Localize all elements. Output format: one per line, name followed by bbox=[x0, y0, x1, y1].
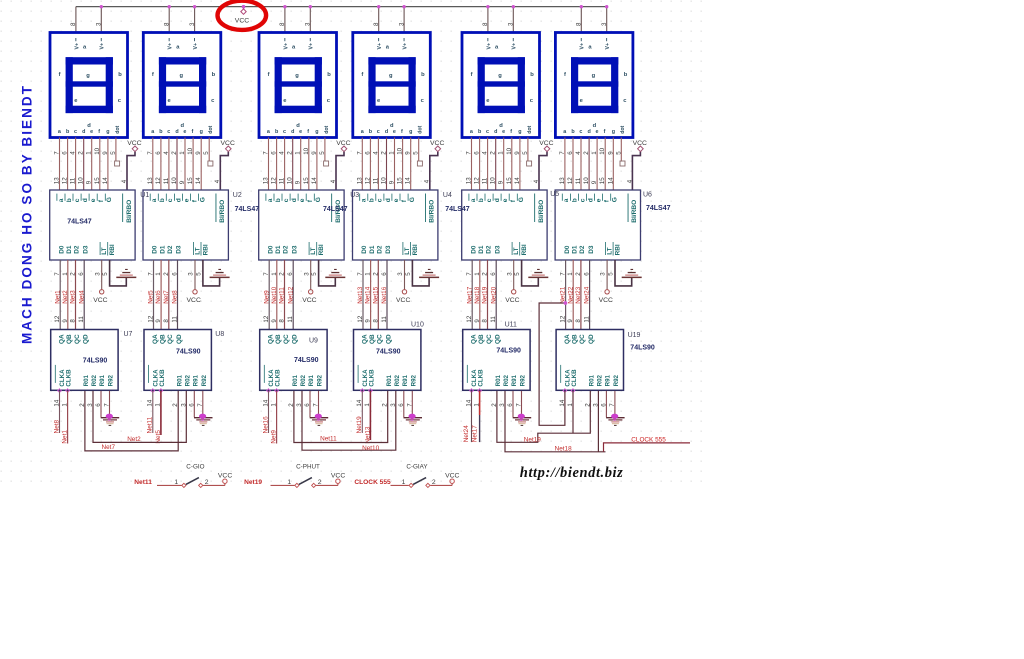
svg-text:3: 3 bbox=[398, 22, 405, 26]
svg-text:c: c bbox=[283, 129, 286, 135]
svg-text:R91: R91 bbox=[193, 374, 200, 386]
svg-text:4: 4 bbox=[279, 151, 286, 155]
svg-text:e: e bbox=[596, 129, 599, 135]
svg-text:3: 3 bbox=[188, 272, 195, 276]
svg-text:Net2: Net2 bbox=[62, 290, 69, 304]
svg-text:Net16: Net16 bbox=[262, 416, 269, 433]
svg-text:10: 10 bbox=[397, 147, 404, 154]
svg-text:2: 2 bbox=[287, 151, 294, 155]
svg-text:Net5: Net5 bbox=[155, 430, 162, 444]
svg-text:9: 9 bbox=[365, 319, 372, 323]
svg-text:3: 3 bbox=[397, 272, 404, 276]
svg-text:Net1: Net1 bbox=[62, 430, 69, 444]
svg-text:U9: U9 bbox=[309, 338, 318, 345]
svg-text:11: 11 bbox=[490, 316, 497, 323]
svg-text:d: d bbox=[494, 198, 501, 202]
svg-text:QA: QA bbox=[59, 334, 66, 344]
svg-text:6: 6 bbox=[381, 272, 388, 276]
svg-text:D3: D3 bbox=[588, 245, 595, 254]
svg-text:dot: dot bbox=[418, 125, 424, 133]
svg-text:QA: QA bbox=[152, 334, 159, 344]
svg-text:c: c bbox=[579, 129, 582, 135]
svg-text:13: 13 bbox=[54, 177, 61, 184]
svg-text:a: a bbox=[267, 198, 274, 202]
svg-text:R02: R02 bbox=[300, 374, 307, 386]
svg-text:10: 10 bbox=[303, 147, 310, 154]
svg-text:CLOCK 555: CLOCK 555 bbox=[354, 479, 391, 486]
svg-text:74LS90: 74LS90 bbox=[294, 357, 319, 364]
svg-text:V+: V+ bbox=[74, 43, 80, 50]
svg-text:e: e bbox=[90, 198, 97, 202]
svg-text:8: 8 bbox=[575, 319, 582, 323]
svg-text:QA: QA bbox=[564, 334, 571, 344]
svg-text:R91: R91 bbox=[308, 374, 315, 386]
svg-text:4: 4 bbox=[163, 151, 170, 155]
svg-text:Net11: Net11 bbox=[147, 416, 154, 433]
svg-text:c: c bbox=[283, 198, 290, 202]
svg-text:2: 2 bbox=[78, 151, 85, 155]
svg-text:g: g bbox=[106, 129, 109, 135]
svg-text:1: 1 bbox=[295, 151, 302, 155]
svg-text:RBI: RBI bbox=[202, 244, 209, 255]
svg-text:5: 5 bbox=[195, 272, 202, 276]
svg-text:QB: QB bbox=[275, 334, 282, 344]
svg-text:f: f bbox=[268, 72, 270, 78]
svg-text:7: 7 bbox=[54, 272, 61, 276]
svg-text:b: b bbox=[275, 198, 282, 202]
svg-text:7: 7 bbox=[357, 272, 364, 276]
svg-text:11: 11 bbox=[381, 316, 388, 323]
svg-text:Net4: Net4 bbox=[78, 290, 85, 304]
svg-text:QC: QC bbox=[377, 334, 384, 344]
svg-text:R01: R01 bbox=[83, 374, 90, 386]
svg-text:6: 6 bbox=[62, 151, 69, 155]
svg-text:8: 8 bbox=[164, 22, 171, 26]
svg-text:6: 6 bbox=[364, 151, 371, 155]
svg-text:a: a bbox=[58, 198, 65, 202]
svg-text:CLKB: CLKB bbox=[368, 369, 375, 387]
svg-text:V+: V+ bbox=[486, 43, 492, 50]
svg-text:D1: D1 bbox=[66, 245, 73, 254]
svg-text:b: b bbox=[571, 198, 578, 202]
svg-text:5: 5 bbox=[607, 272, 614, 276]
svg-text:7: 7 bbox=[263, 272, 270, 276]
svg-text:f: f bbox=[604, 129, 606, 135]
svg-text:Net5: Net5 bbox=[148, 290, 155, 304]
svg-text:VCC: VCC bbox=[302, 297, 316, 304]
svg-text:Net19: Net19 bbox=[356, 416, 363, 433]
svg-text:QB: QB bbox=[66, 334, 73, 344]
svg-text:R01: R01 bbox=[176, 374, 183, 386]
svg-text:g: g bbox=[409, 129, 412, 135]
svg-text:1: 1 bbox=[498, 151, 505, 155]
svg-text:d: d bbox=[494, 129, 497, 135]
svg-text:11: 11 bbox=[163, 177, 170, 184]
svg-text:R92: R92 bbox=[108, 374, 115, 386]
svg-text:5: 5 bbox=[102, 272, 109, 276]
svg-text:Net17: Net17 bbox=[471, 425, 478, 442]
svg-text:U7: U7 bbox=[124, 331, 133, 338]
svg-text:10: 10 bbox=[287, 177, 294, 184]
svg-text:VCC: VCC bbox=[633, 140, 647, 147]
svg-text:9: 9 bbox=[514, 151, 521, 155]
svg-text:f: f bbox=[564, 72, 566, 78]
svg-text:11: 11 bbox=[584, 316, 591, 323]
svg-text:g: g bbox=[612, 129, 615, 135]
svg-text:R02: R02 bbox=[597, 374, 604, 386]
svg-text:VCC: VCC bbox=[221, 140, 235, 147]
svg-text:11: 11 bbox=[279, 177, 286, 184]
svg-text:D2: D2 bbox=[377, 245, 384, 254]
svg-text:BI/RBO: BI/RBO bbox=[538, 200, 545, 223]
svg-text:c: c bbox=[377, 129, 380, 135]
svg-text:15: 15 bbox=[397, 177, 404, 184]
svg-text:e: e bbox=[393, 129, 396, 135]
svg-text:1: 1 bbox=[591, 151, 598, 155]
svg-text:9: 9 bbox=[474, 319, 481, 323]
svg-text:D1: D1 bbox=[159, 245, 166, 254]
svg-text:9: 9 bbox=[271, 319, 278, 323]
svg-text:CLKB: CLKB bbox=[571, 369, 578, 387]
svg-text:6: 6 bbox=[490, 272, 497, 276]
svg-text:6: 6 bbox=[584, 272, 591, 276]
svg-text:QA: QA bbox=[471, 334, 478, 344]
svg-text:8: 8 bbox=[70, 319, 77, 323]
svg-text:U8: U8 bbox=[215, 331, 224, 338]
svg-text:Net9: Net9 bbox=[263, 290, 270, 304]
svg-text:VCC: VCC bbox=[235, 18, 249, 25]
svg-text:D0: D0 bbox=[58, 245, 65, 254]
svg-text:VCC: VCC bbox=[93, 297, 107, 304]
svg-text:f: f bbox=[510, 129, 512, 135]
svg-text:12: 12 bbox=[466, 315, 473, 322]
svg-text:15: 15 bbox=[506, 177, 513, 184]
svg-text:11: 11 bbox=[575, 177, 582, 184]
svg-text:2: 2 bbox=[381, 151, 388, 155]
svg-text:7: 7 bbox=[559, 151, 566, 155]
svg-text:e: e bbox=[299, 198, 306, 202]
svg-text:D1: D1 bbox=[369, 245, 376, 254]
svg-text:74LS47: 74LS47 bbox=[67, 219, 92, 226]
svg-text:f: f bbox=[307, 129, 309, 135]
svg-text:g: g bbox=[389, 73, 393, 79]
svg-text:6: 6 bbox=[78, 272, 85, 276]
svg-text:D3: D3 bbox=[82, 245, 89, 254]
svg-text:10: 10 bbox=[94, 147, 101, 154]
svg-text:Net9: Net9 bbox=[271, 430, 278, 444]
svg-text:c: c bbox=[167, 129, 170, 135]
svg-text:c: c bbox=[579, 198, 586, 202]
svg-text:5: 5 bbox=[615, 151, 622, 155]
svg-text:Net8: Net8 bbox=[172, 290, 179, 304]
svg-text:R92: R92 bbox=[613, 374, 620, 386]
svg-text:D2: D2 bbox=[486, 245, 493, 254]
svg-text:Net11: Net11 bbox=[134, 479, 152, 486]
svg-text:Net7: Net7 bbox=[102, 444, 116, 451]
svg-text:V+: V+ bbox=[512, 43, 518, 50]
svg-text:74LS90: 74LS90 bbox=[176, 348, 201, 355]
svg-text:10: 10 bbox=[171, 177, 178, 184]
svg-text:U11: U11 bbox=[505, 322, 517, 329]
svg-text:1: 1 bbox=[155, 272, 162, 276]
svg-text:9: 9 bbox=[102, 151, 109, 155]
svg-text:D0: D0 bbox=[267, 245, 274, 254]
svg-text:b: b bbox=[327, 72, 331, 78]
svg-text:12: 12 bbox=[357, 315, 364, 322]
svg-text:74LS90: 74LS90 bbox=[496, 347, 521, 354]
svg-text:QA: QA bbox=[361, 334, 368, 344]
svg-text:D0: D0 bbox=[470, 245, 477, 254]
svg-text:G: G bbox=[518, 197, 525, 202]
svg-text:b: b bbox=[421, 72, 425, 78]
svg-text:7: 7 bbox=[466, 151, 473, 155]
svg-text:8: 8 bbox=[279, 319, 286, 323]
svg-text:8: 8 bbox=[70, 22, 77, 26]
svg-text:3: 3 bbox=[303, 272, 310, 276]
svg-text:D3: D3 bbox=[494, 245, 501, 254]
svg-text:D0: D0 bbox=[361, 245, 368, 254]
svg-text:Net10: Net10 bbox=[362, 445, 379, 452]
svg-text:1: 1 bbox=[174, 479, 178, 486]
svg-text:Net18: Net18 bbox=[555, 446, 572, 453]
svg-text:12: 12 bbox=[148, 315, 155, 322]
svg-text:R01: R01 bbox=[386, 374, 393, 386]
svg-text:11: 11 bbox=[372, 177, 379, 184]
svg-text:e: e bbox=[90, 129, 93, 135]
svg-text:C-PHUT: C-PHUT bbox=[296, 463, 320, 470]
svg-text:f: f bbox=[471, 72, 473, 78]
svg-text:BI/RBO: BI/RBO bbox=[631, 200, 638, 223]
svg-text:R91: R91 bbox=[605, 374, 612, 386]
svg-text:b: b bbox=[478, 198, 485, 202]
svg-text:10: 10 bbox=[78, 177, 85, 184]
svg-text:VCC: VCC bbox=[430, 140, 444, 147]
svg-text:74LS47: 74LS47 bbox=[445, 206, 470, 213]
svg-text:e: e bbox=[595, 198, 602, 202]
svg-text:Net19: Net19 bbox=[524, 436, 541, 443]
svg-text:1: 1 bbox=[86, 151, 93, 155]
svg-text:R02: R02 bbox=[394, 374, 401, 386]
svg-text:g: g bbox=[86, 73, 90, 79]
svg-text:15: 15 bbox=[599, 177, 606, 184]
svg-text:LT: LT bbox=[513, 247, 520, 254]
svg-text:12: 12 bbox=[560, 315, 567, 322]
svg-text:D2: D2 bbox=[579, 245, 586, 254]
svg-text:VCC: VCC bbox=[539, 140, 553, 147]
svg-text:Net22: Net22 bbox=[567, 286, 574, 303]
svg-text:e: e bbox=[393, 198, 400, 202]
svg-text:f: f bbox=[192, 129, 194, 135]
svg-text:d: d bbox=[385, 198, 392, 202]
svg-text:7: 7 bbox=[148, 272, 155, 276]
svg-text:D3: D3 bbox=[291, 245, 298, 254]
svg-text:74LS90: 74LS90 bbox=[630, 345, 655, 352]
svg-text:9: 9 bbox=[389, 180, 396, 184]
svg-text:VCC: VCC bbox=[187, 297, 201, 304]
svg-text:VCC: VCC bbox=[127, 140, 141, 147]
svg-text:D2: D2 bbox=[74, 245, 81, 254]
svg-text:2: 2 bbox=[482, 272, 489, 276]
svg-text:RBI: RBI bbox=[109, 244, 116, 255]
svg-text:14: 14 bbox=[195, 177, 202, 184]
svg-text:V+: V+ bbox=[605, 43, 611, 50]
svg-text:12: 12 bbox=[567, 177, 574, 184]
svg-text:U6: U6 bbox=[643, 191, 652, 198]
svg-text:D0: D0 bbox=[152, 245, 159, 254]
svg-text:d: d bbox=[588, 129, 591, 135]
svg-text:QD: QD bbox=[385, 334, 392, 344]
svg-text:3: 3 bbox=[508, 22, 515, 26]
svg-text:b: b bbox=[159, 198, 166, 202]
svg-text:V+: V+ bbox=[100, 43, 106, 50]
svg-text:VCC: VCC bbox=[599, 297, 613, 304]
svg-text:g: g bbox=[498, 73, 502, 79]
svg-text:9: 9 bbox=[311, 151, 318, 155]
svg-text:1: 1 bbox=[402, 479, 406, 486]
svg-text:e: e bbox=[183, 198, 190, 202]
svg-text:a: a bbox=[151, 198, 158, 202]
svg-text:4: 4 bbox=[372, 151, 379, 155]
svg-text:Net13: Net13 bbox=[364, 426, 371, 443]
svg-text:7: 7 bbox=[263, 151, 270, 155]
svg-text:2: 2 bbox=[372, 272, 379, 276]
svg-text:R91: R91 bbox=[511, 374, 518, 386]
svg-text:10: 10 bbox=[187, 147, 194, 154]
svg-text:9: 9 bbox=[591, 180, 598, 184]
svg-text:g: g bbox=[592, 73, 596, 79]
svg-text:12: 12 bbox=[54, 315, 61, 322]
svg-text:f: f bbox=[361, 72, 363, 78]
svg-text:13: 13 bbox=[147, 177, 154, 184]
svg-text:74LS47: 74LS47 bbox=[646, 205, 671, 212]
svg-text:10: 10 bbox=[599, 147, 606, 154]
svg-text:RBI: RBI bbox=[521, 244, 528, 255]
svg-text:R91: R91 bbox=[402, 374, 409, 386]
svg-text:Net1: Net1 bbox=[54, 290, 61, 304]
svg-text:12: 12 bbox=[271, 177, 278, 184]
svg-text:QB: QB bbox=[369, 334, 376, 344]
svg-text:D3: D3 bbox=[176, 245, 183, 254]
svg-text:9: 9 bbox=[155, 319, 162, 323]
svg-text:15: 15 bbox=[303, 177, 310, 184]
svg-text:R92: R92 bbox=[201, 374, 208, 386]
svg-text:5: 5 bbox=[311, 272, 318, 276]
svg-text:12: 12 bbox=[474, 177, 481, 184]
svg-text:g: g bbox=[180, 73, 184, 79]
svg-text:4: 4 bbox=[482, 151, 489, 155]
svg-text:R92: R92 bbox=[411, 374, 418, 386]
svg-text:d: d bbox=[82, 129, 85, 135]
svg-text:R92: R92 bbox=[317, 374, 324, 386]
svg-text:dot: dot bbox=[208, 125, 214, 133]
svg-text:VCC: VCC bbox=[396, 297, 410, 304]
svg-text:D3: D3 bbox=[385, 245, 392, 254]
svg-text:5: 5 bbox=[514, 272, 521, 276]
svg-text:U3: U3 bbox=[350, 192, 359, 199]
svg-text:LT: LT bbox=[607, 247, 614, 254]
svg-text:V+: V+ bbox=[283, 43, 289, 50]
svg-text:3: 3 bbox=[600, 272, 607, 276]
svg-text:Net10: Net10 bbox=[271, 286, 278, 303]
svg-text:12: 12 bbox=[364, 177, 371, 184]
svg-text:c: c bbox=[486, 198, 493, 202]
svg-text:G: G bbox=[106, 197, 113, 202]
svg-text:http://biendt.biz: http://biendt.biz bbox=[520, 465, 623, 481]
svg-text:b: b bbox=[118, 72, 122, 78]
svg-text:d: d bbox=[175, 129, 178, 135]
svg-text:3: 3 bbox=[601, 22, 608, 26]
svg-text:VCC: VCC bbox=[445, 472, 459, 479]
svg-text:5: 5 bbox=[413, 151, 420, 155]
svg-text:QC: QC bbox=[486, 334, 493, 344]
svg-text:2: 2 bbox=[279, 272, 286, 276]
svg-text:D1: D1 bbox=[478, 245, 485, 254]
svg-text:10: 10 bbox=[506, 147, 513, 154]
svg-text:7: 7 bbox=[466, 272, 473, 276]
svg-text:2: 2 bbox=[163, 272, 170, 276]
svg-text:11: 11 bbox=[287, 316, 294, 323]
svg-text:10: 10 bbox=[381, 177, 388, 184]
svg-text:6: 6 bbox=[271, 151, 278, 155]
svg-text:12: 12 bbox=[62, 177, 69, 184]
svg-text:R02: R02 bbox=[503, 374, 510, 386]
svg-text:CLKB: CLKB bbox=[275, 369, 282, 387]
svg-text:5: 5 bbox=[203, 151, 210, 155]
svg-text:d: d bbox=[587, 198, 594, 202]
svg-text:BI/RBO: BI/RBO bbox=[219, 200, 226, 223]
svg-text:Net3: Net3 bbox=[70, 290, 77, 304]
svg-text:f: f bbox=[152, 72, 154, 78]
svg-text:Net23: Net23 bbox=[575, 286, 582, 303]
svg-text:3: 3 bbox=[189, 22, 196, 26]
svg-text:Net24: Net24 bbox=[463, 425, 470, 442]
svg-text:Net8: Net8 bbox=[53, 419, 60, 433]
svg-text:QB: QB bbox=[478, 334, 485, 344]
svg-text:6: 6 bbox=[474, 151, 481, 155]
svg-text:C-GIO: C-GIO bbox=[186, 463, 204, 470]
svg-text:6: 6 bbox=[287, 272, 294, 276]
svg-text:14: 14 bbox=[607, 177, 614, 184]
svg-text:13: 13 bbox=[356, 177, 363, 184]
svg-text:9: 9 bbox=[567, 319, 574, 323]
svg-text:U10: U10 bbox=[411, 321, 424, 328]
svg-text:D1: D1 bbox=[275, 245, 282, 254]
svg-text:QD: QD bbox=[83, 334, 90, 344]
svg-text:dot: dot bbox=[527, 125, 533, 133]
svg-text:14: 14 bbox=[102, 177, 109, 184]
svg-text:LT: LT bbox=[101, 247, 108, 254]
svg-text:c: c bbox=[486, 129, 489, 135]
svg-text:a: a bbox=[563, 198, 570, 202]
svg-text:Net13: Net13 bbox=[357, 286, 364, 303]
svg-text:d: d bbox=[175, 198, 182, 202]
svg-text:9: 9 bbox=[607, 151, 614, 155]
svg-text:9: 9 bbox=[86, 180, 93, 184]
svg-text:dot: dot bbox=[115, 125, 121, 133]
svg-text:9: 9 bbox=[62, 319, 69, 323]
svg-text:U2: U2 bbox=[233, 192, 242, 199]
svg-text:2: 2 bbox=[70, 272, 77, 276]
svg-text:d: d bbox=[291, 198, 298, 202]
svg-text:8: 8 bbox=[482, 22, 489, 26]
svg-text:Net18: Net18 bbox=[474, 286, 481, 303]
svg-text:BI/RBO: BI/RBO bbox=[126, 200, 133, 223]
svg-text:b: b bbox=[369, 198, 376, 202]
svg-text:8: 8 bbox=[373, 22, 380, 26]
svg-text:8: 8 bbox=[576, 22, 583, 26]
svg-text:74LS90: 74LS90 bbox=[376, 348, 401, 355]
svg-text:G: G bbox=[200, 197, 207, 202]
